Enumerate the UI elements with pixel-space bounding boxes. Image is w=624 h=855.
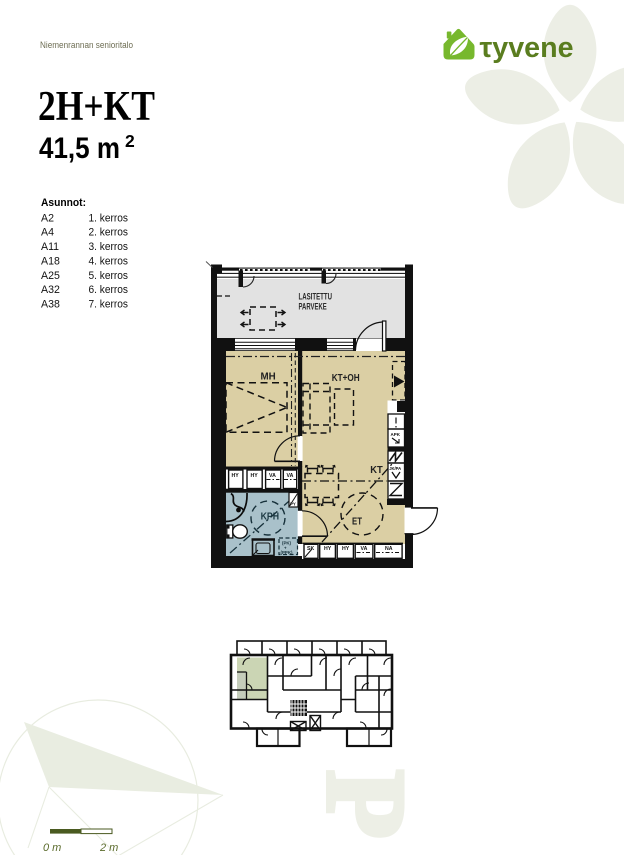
svg-text:P: P xyxy=(304,770,428,838)
svg-text:A38: A38 xyxy=(41,299,60,311)
svg-text:JK/PA: JK/PA xyxy=(389,466,401,471)
svg-text:MH: MH xyxy=(261,371,276,383)
svg-text:A25: A25 xyxy=(41,270,60,282)
svg-text:5. kerros: 5. kerros xyxy=(89,270,129,282)
svg-text:2: 2 xyxy=(125,131,135,151)
svg-text:6. kerros: 6. kerros xyxy=(89,284,129,296)
svg-text:VA: VA xyxy=(269,473,276,479)
svg-text:APK: APK xyxy=(391,432,401,437)
svg-text:VA: VA xyxy=(287,473,294,479)
svg-text:KT: KT xyxy=(370,464,383,476)
svg-text:A32: A32 xyxy=(41,284,60,296)
svg-text:Niemenrannan senioritalo: Niemenrannan senioritalo xyxy=(40,40,133,50)
svg-text:2 m: 2 m xyxy=(99,842,118,854)
svg-text:2. kerros: 2. kerros xyxy=(89,227,129,239)
svg-text:1. kerros: 1. kerros xyxy=(89,212,129,224)
svg-text:PY: PY xyxy=(290,502,296,507)
svg-text:VA: VA xyxy=(361,546,368,552)
svg-text:3. kerros: 3. kerros xyxy=(89,241,129,253)
svg-text:KT+OH: KT+OH xyxy=(332,372,360,384)
svg-text:0 m: 0 m xyxy=(43,842,61,854)
svg-text:τyvene: τyvene xyxy=(480,32,574,64)
svg-text:NA: NA xyxy=(385,546,393,552)
svg-text:7. kerros: 7. kerros xyxy=(89,299,129,311)
svg-text:2H+KT: 2H+KT xyxy=(38,84,155,130)
svg-text:LASITETTU: LASITETTU xyxy=(299,292,333,302)
svg-text:HY: HY xyxy=(324,546,332,552)
svg-text:(PPK): (PPK) xyxy=(281,550,293,555)
svg-text:PARVEKE: PARVEKE xyxy=(299,302,327,312)
svg-text:4. kerros: 4. kerros xyxy=(89,255,129,267)
svg-text:A4: A4 xyxy=(41,227,54,239)
svg-text:Asunnot:: Asunnot: xyxy=(41,197,86,209)
svg-text:A2: A2 xyxy=(41,212,54,224)
svg-text:HY: HY xyxy=(251,473,259,479)
svg-text:ET: ET xyxy=(352,516,362,528)
svg-text:41,5 m: 41,5 m xyxy=(39,132,120,165)
svg-text:HY: HY xyxy=(232,473,240,479)
svg-text:A11: A11 xyxy=(41,241,59,253)
svg-text:A18: A18 xyxy=(41,255,60,267)
svg-text:HY: HY xyxy=(342,546,350,552)
